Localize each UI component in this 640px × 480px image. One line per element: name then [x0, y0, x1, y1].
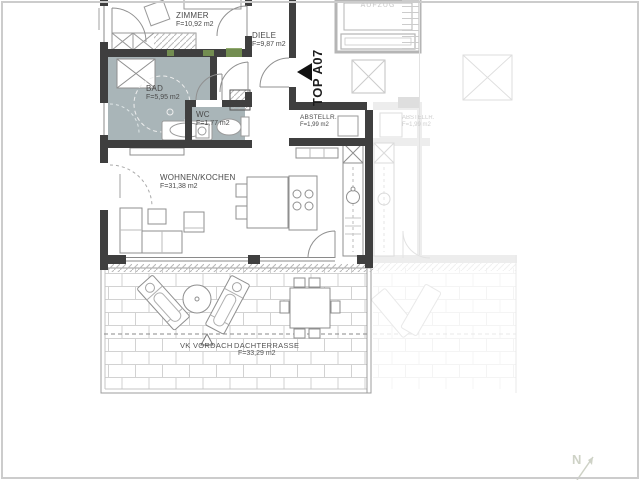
- threshold-hatch: [108, 264, 373, 272]
- vordach-label: VK VORDACH: [180, 341, 233, 350]
- neighbor-terrace-bricks: [373, 268, 516, 389]
- coffee-table: [148, 209, 166, 224]
- storage-shelf: [338, 116, 358, 136]
- chair: [236, 184, 247, 197]
- unit-label: TOP A07: [310, 49, 325, 106]
- armchair: [184, 212, 204, 232]
- room-label-wohnen-kochen: WOHNEN/KOCHEN F=31,38 m2: [160, 173, 236, 191]
- terrace-chair: [294, 278, 305, 287]
- entrance-door: [260, 58, 289, 87]
- bed: [184, 0, 241, 9]
- dining-table: [247, 177, 288, 228]
- neighbor-room-label: ABSTELLR. F=1,99 m2: [402, 115, 434, 129]
- room-label-wc: WC F=1,77 m2: [196, 110, 230, 128]
- room-label-zimmer: ZIMMER F=10,92 m2: [176, 11, 214, 29]
- terrace-table: [290, 288, 330, 328]
- room-label-diele: DIELE F=9,87 m2: [252, 31, 286, 49]
- bath-door: [220, 62, 248, 92]
- glazing: [126, 258, 335, 262]
- cabinet-row: [296, 148, 338, 158]
- north-label: N: [572, 452, 581, 467]
- floor-plan-canvas: ZIMMER F=10,92 m2 DIELE F=9,87 m2 BAD F=…: [0, 0, 640, 480]
- terrace-divider: [367, 268, 371, 393]
- room-label-abstellraum: ABSTELLR. F=1,99 m2: [300, 114, 337, 129]
- sideboard: [130, 148, 184, 155]
- kitchen-island: [289, 176, 317, 230]
- room-label-dachterrasse: DACHTERRASSE F=33,29 m2: [234, 341, 299, 357]
- chair: [236, 206, 247, 219]
- balcony-door-swing: [110, 165, 152, 207]
- sink: [347, 191, 360, 204]
- hall-bedroom-door: [217, 6, 247, 36]
- elevator-label: AUFZUG: [336, 2, 420, 9]
- terrace-door: [308, 231, 335, 258]
- cooktop-burner: [293, 190, 301, 198]
- neighbor-unit: [371, 102, 517, 393]
- stool: [144, 0, 170, 26]
- room-label-bad: BAD F=5,95 m2: [146, 84, 180, 102]
